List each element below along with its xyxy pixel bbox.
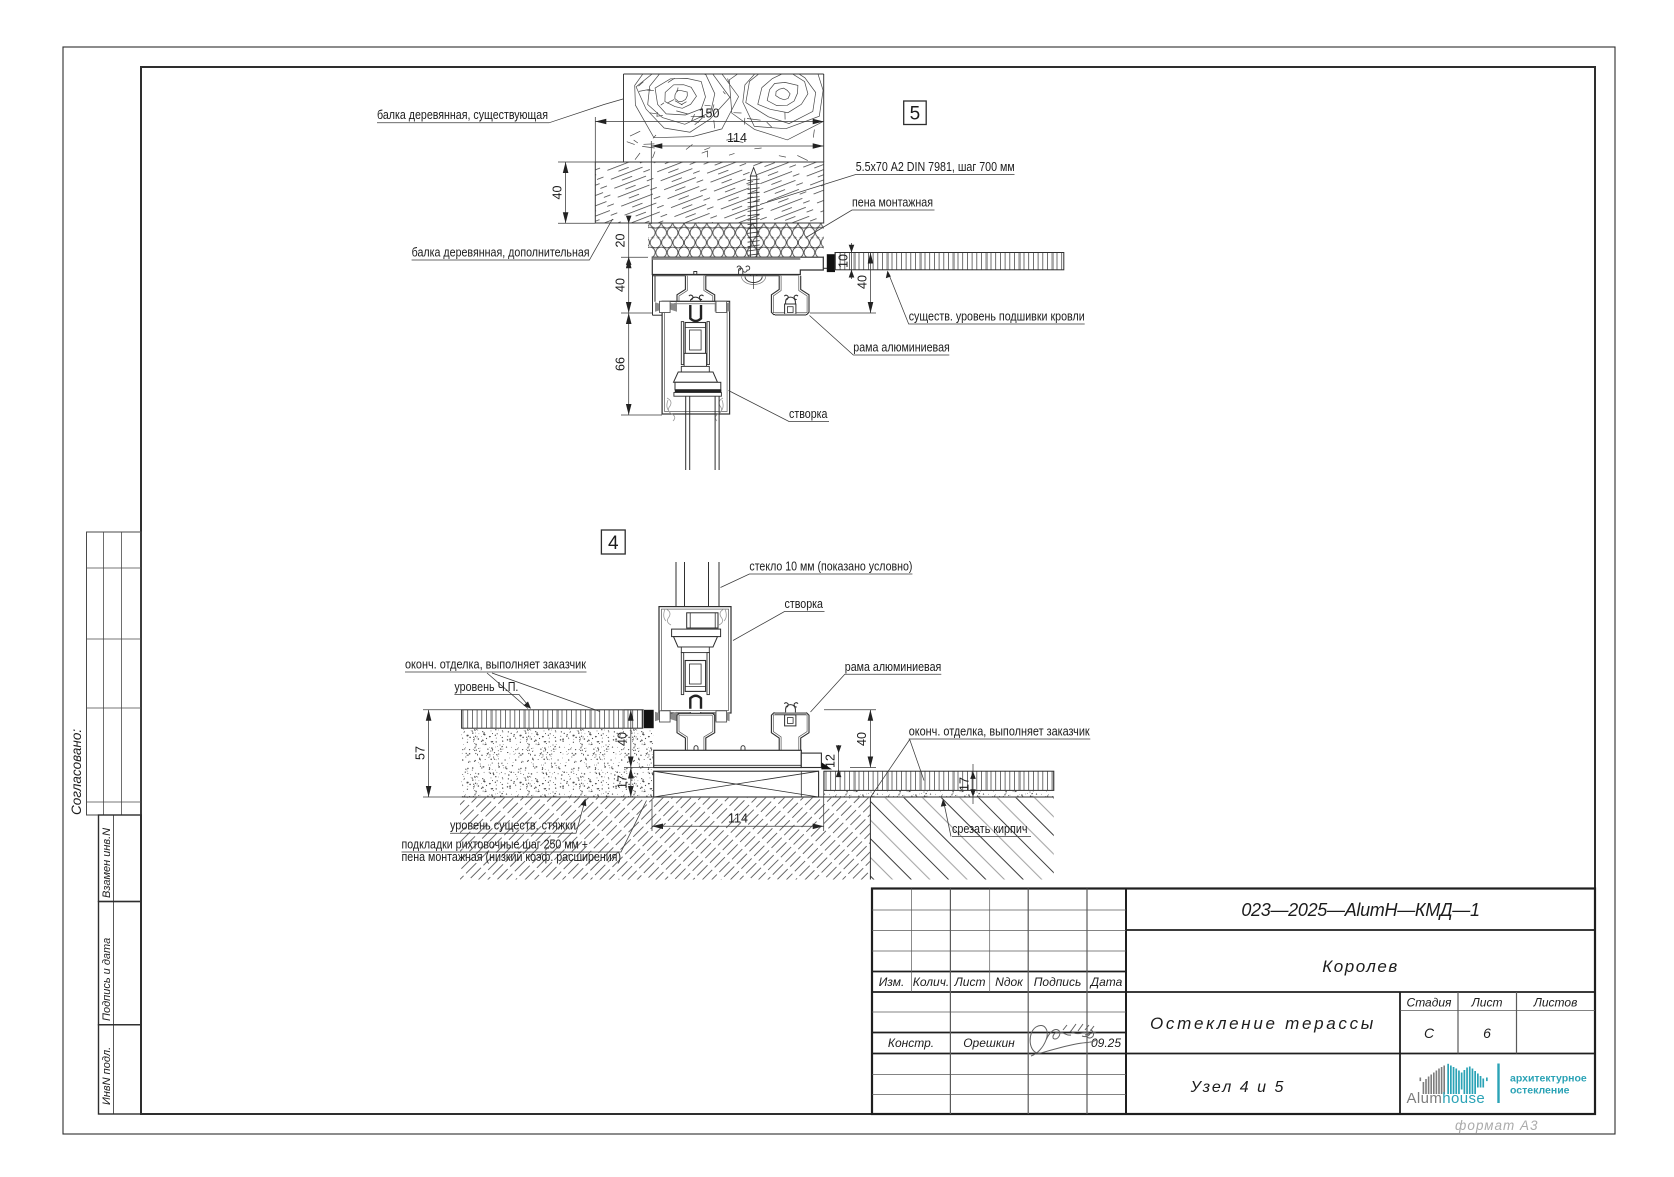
svg-text:12: 12 bbox=[824, 754, 838, 768]
svg-text:Подпись: Подпись bbox=[1034, 975, 1082, 989]
svg-text:Согласовано:: Согласовано: bbox=[69, 729, 84, 815]
svg-text:023—2025—AlumH—КМД—1: 023—2025—AlumH—КМД—1 bbox=[1241, 900, 1479, 920]
svg-text:Листов: Листов bbox=[1533, 996, 1578, 1010]
svg-text:С: С bbox=[1424, 1025, 1435, 1041]
svg-text:20: 20 bbox=[614, 234, 628, 248]
svg-text:40: 40 bbox=[551, 186, 565, 200]
svg-text:Узел 4 и 5: Узел 4 и 5 bbox=[1190, 1079, 1286, 1096]
svg-text:Изм.: Изм. bbox=[879, 975, 905, 989]
svg-text:66: 66 bbox=[614, 357, 628, 371]
svg-text:10: 10 bbox=[837, 254, 851, 268]
svg-text:архитектурное: архитектурное bbox=[1510, 1073, 1587, 1085]
svg-text:4: 4 bbox=[608, 533, 619, 554]
svg-text:Остекление терассы: Остекление терассы bbox=[1150, 1014, 1376, 1033]
svg-text:Nдок: Nдок bbox=[995, 975, 1024, 989]
svg-text:40: 40 bbox=[856, 275, 870, 289]
svg-text:5: 5 bbox=[910, 104, 921, 125]
svg-text:Лист: Лист bbox=[954, 975, 986, 989]
svg-text:Лист: Лист bbox=[1471, 996, 1503, 1010]
svg-text:17: 17 bbox=[616, 775, 630, 789]
svg-text:114: 114 bbox=[727, 131, 747, 145]
svg-text:уровень Ч.П.: уровень Ч.П. bbox=[454, 680, 518, 694]
svg-text:Дата: Дата bbox=[1089, 975, 1123, 989]
svg-text:5.5х70 А2 DIN 7981, шаг 700 мм: 5.5х70 А2 DIN 7981, шаг 700 мм bbox=[856, 160, 1015, 174]
svg-text:Подпись и дата: Подпись и дата bbox=[101, 938, 113, 1021]
svg-text:створка: створка bbox=[789, 407, 828, 421]
svg-text:09.25: 09.25 bbox=[1091, 1036, 1121, 1050]
svg-text:40: 40 bbox=[616, 732, 630, 746]
svg-text:Стадия: Стадия bbox=[1407, 996, 1453, 1010]
svg-text:Колич.: Колич. bbox=[913, 975, 949, 989]
svg-text:срезать кирпич: срезать кирпич bbox=[952, 822, 1028, 836]
svg-text:Взамен инв.N: Взамен инв.N bbox=[101, 828, 113, 898]
svg-text:пена монтажная: пена монтажная bbox=[852, 196, 933, 210]
svg-text:17: 17 bbox=[958, 777, 972, 791]
svg-text:уровень существ. стяжки: уровень существ. стяжки bbox=[450, 819, 576, 833]
svg-text:рама алюминиевая: рама алюминиевая bbox=[853, 341, 950, 355]
svg-text:114: 114 bbox=[728, 811, 748, 825]
svg-text:оконч. отделка, выполняет зака: оконч. отделка, выполняет заказчик bbox=[405, 658, 586, 672]
svg-text:40: 40 bbox=[614, 278, 628, 292]
svg-text:существ. уровень подшивки кров: существ. уровень подшивки кровли bbox=[909, 310, 1085, 324]
svg-text:оконч. отделка, выполняет зака: оконч. отделка, выполняет заказчик bbox=[909, 725, 1090, 739]
svg-text:Alumhouse: Alumhouse bbox=[1407, 1090, 1486, 1107]
svg-text:6: 6 bbox=[1483, 1025, 1491, 1041]
svg-text:150: 150 bbox=[699, 107, 720, 121]
svg-text:формат А3: формат А3 bbox=[1455, 1118, 1539, 1133]
svg-text:створка: створка bbox=[785, 597, 824, 611]
svg-text:балка деревянная, дополнительн: балка деревянная, дополнительная bbox=[412, 246, 590, 260]
svg-text:Орешкин: Орешкин bbox=[963, 1036, 1015, 1050]
svg-text:стекло 10 мм (показано условно: стекло 10 мм (показано условно) bbox=[749, 560, 912, 574]
svg-text:40: 40 bbox=[855, 732, 869, 746]
svg-text:Королев: Королев bbox=[1322, 957, 1398, 976]
svg-text:балка деревянная, существующая: балка деревянная, существующая bbox=[377, 108, 548, 122]
svg-text:ИнвN подл.: ИнвN подл. bbox=[101, 1047, 113, 1105]
svg-text:остекление: остекление bbox=[1510, 1085, 1570, 1097]
svg-text:Констр.: Констр. bbox=[888, 1036, 934, 1050]
svg-text:57: 57 bbox=[414, 746, 428, 760]
svg-text:рама алюминиевая: рама алюминиевая bbox=[845, 660, 942, 674]
